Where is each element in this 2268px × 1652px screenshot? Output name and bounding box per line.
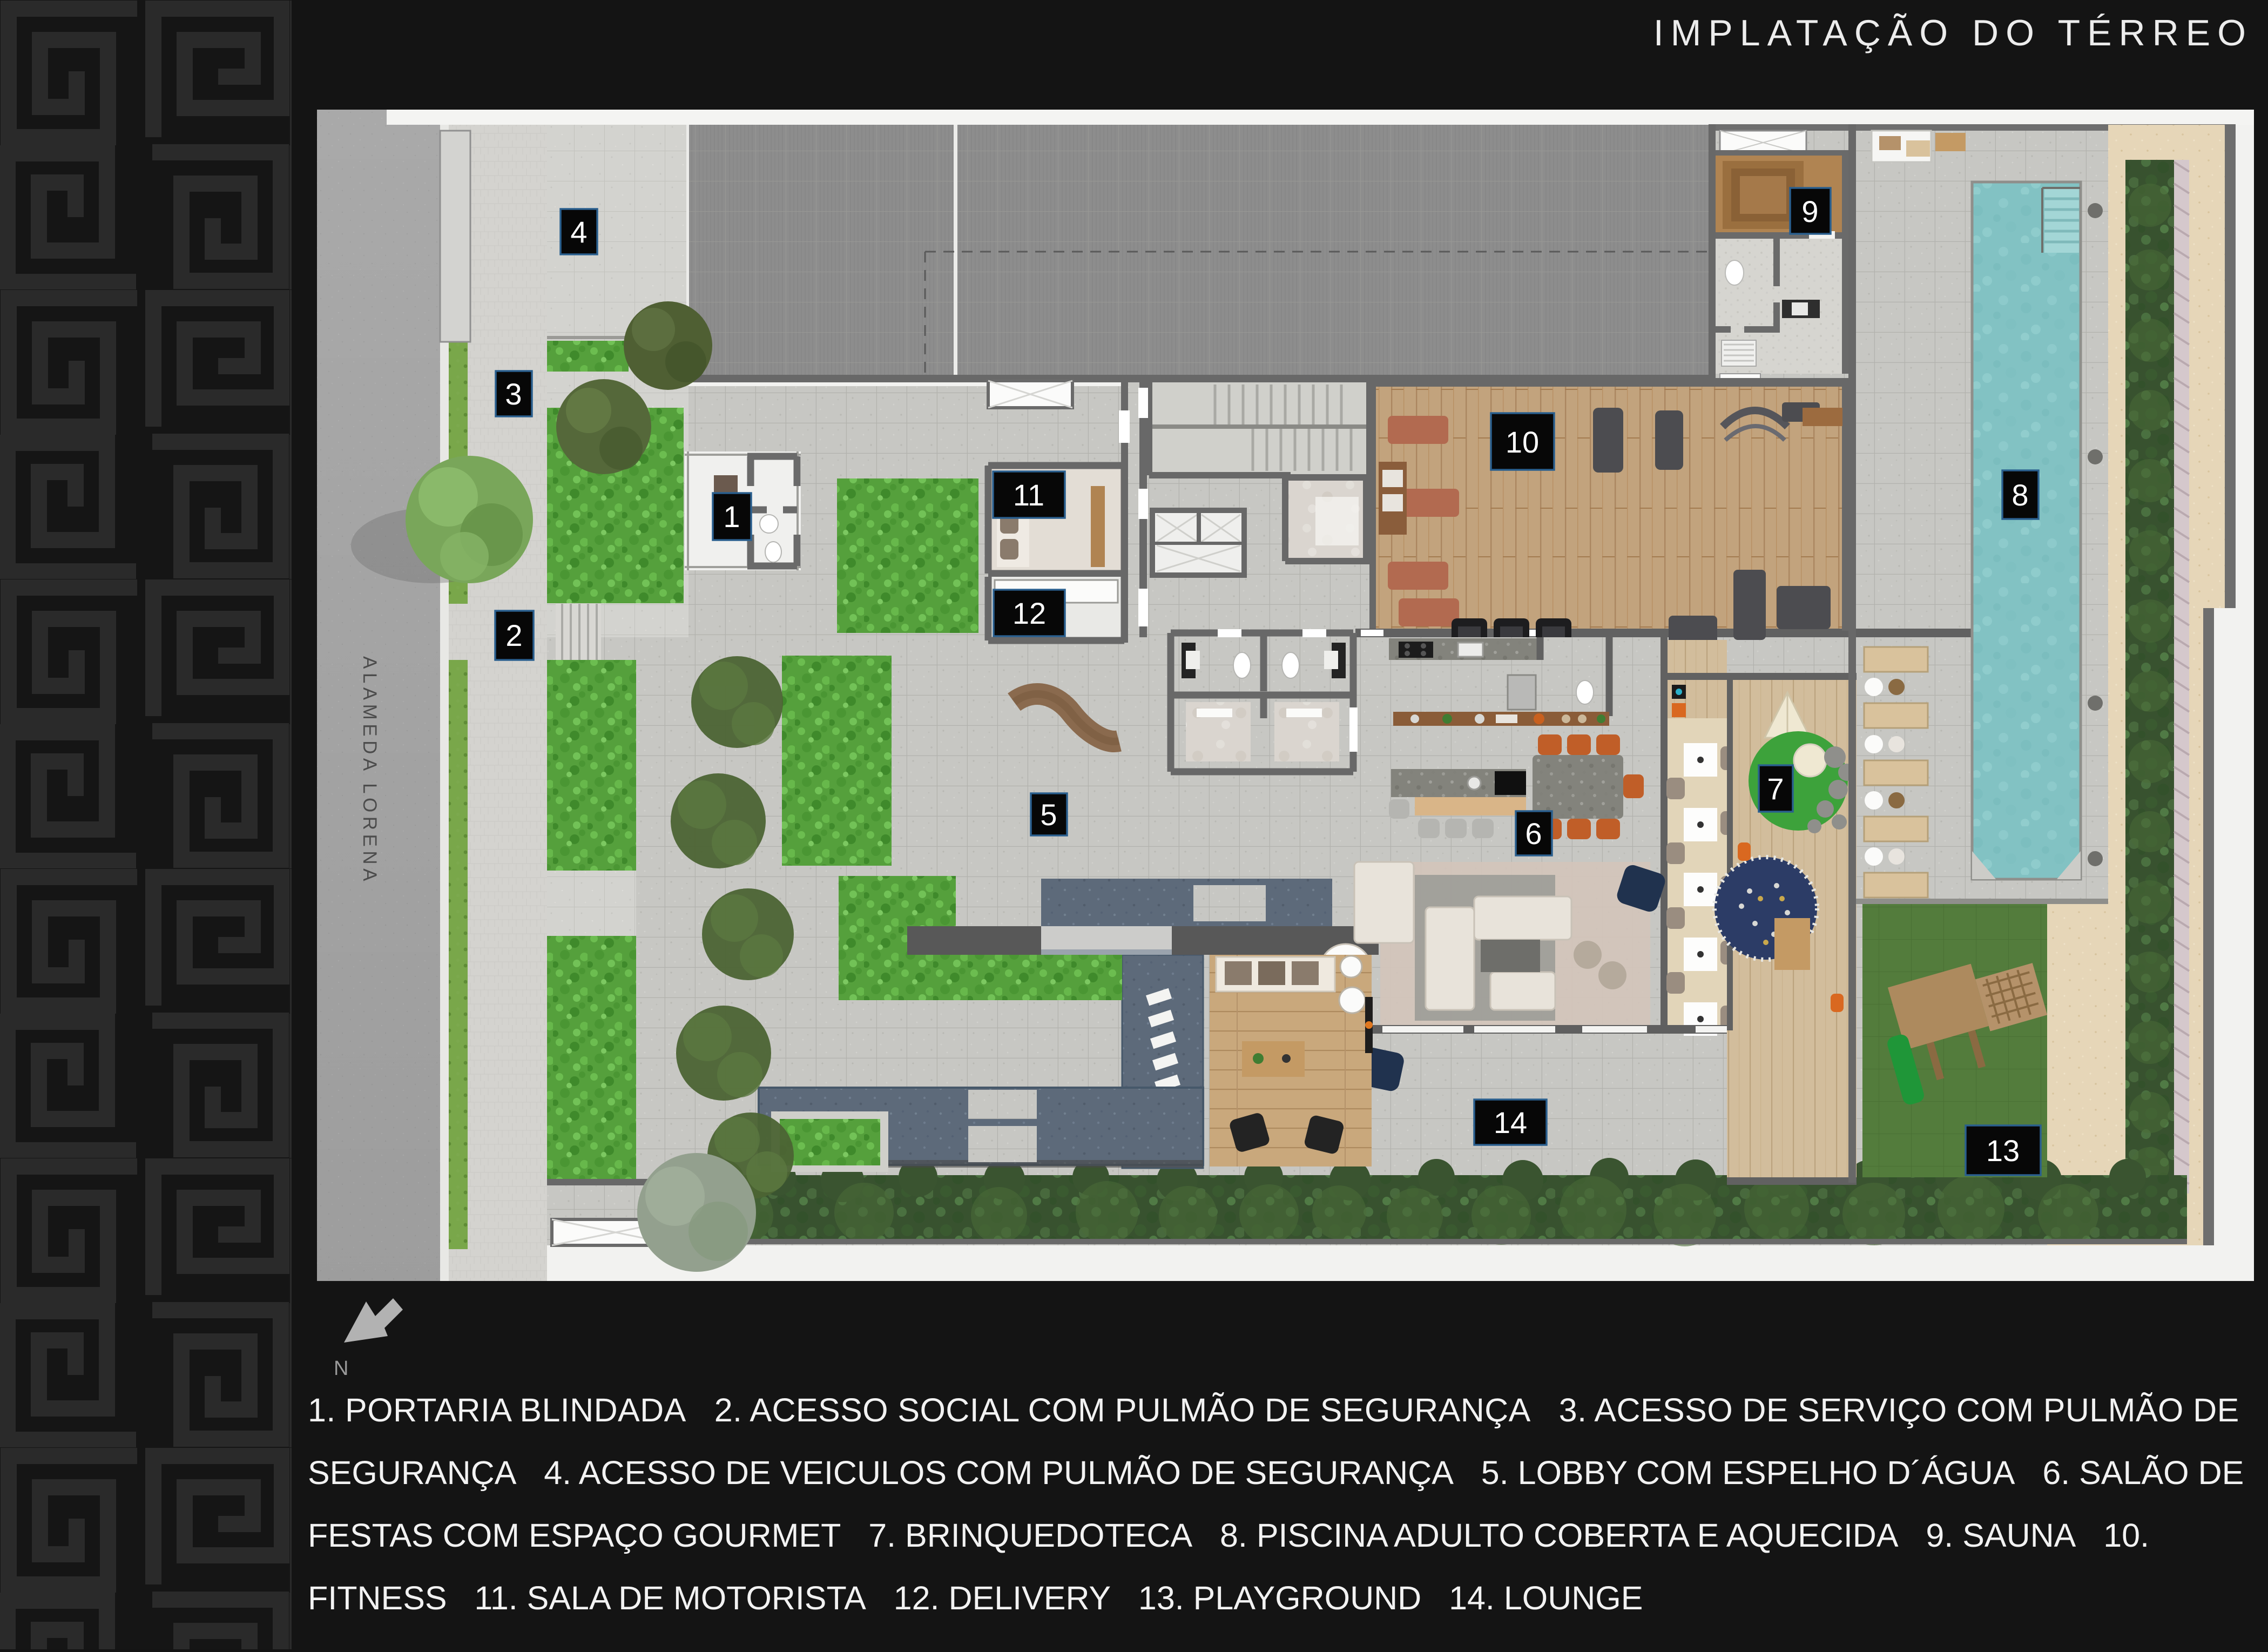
svg-text:1. PORTARIA BLINDADA 2. ACES: 1. PORTARIA BLINDADA 2. ACESSO SOCIAL CO… — [308, 1392, 2239, 1428]
svg-text:1: 1 — [723, 500, 740, 534]
svg-text:14: 14 — [1494, 1105, 1527, 1139]
svg-text:SEGURANÇA 4. ACESSO DE VEICU: SEGURANÇA 4. ACESSO DE VEICULOS COM PULM… — [308, 1454, 2244, 1491]
svg-text:2: 2 — [505, 618, 522, 652]
svg-text:10: 10 — [1506, 425, 1539, 459]
svg-text:IMPLATAÇÃO DO TÉRREO: IMPLATAÇÃO DO TÉRREO — [1653, 12, 2253, 53]
svg-text:5: 5 — [1040, 798, 1057, 832]
svg-text:12: 12 — [1013, 596, 1046, 630]
svg-text:4: 4 — [570, 215, 587, 249]
svg-text:FITNESS 11. SALA DE MOTORIST: FITNESS 11. SALA DE MOTORISTA 12. DELIVE… — [308, 1580, 1643, 1616]
svg-text:8: 8 — [2012, 478, 2028, 512]
svg-text:7: 7 — [1767, 772, 1784, 806]
svg-text:N: N — [334, 1357, 348, 1380]
svg-text:3: 3 — [505, 377, 522, 411]
svg-text:FESTAS COM ESPAÇO GOURMET 7.: FESTAS COM ESPAÇO GOURMET 7. BRINQUEDOTE… — [308, 1517, 2149, 1554]
svg-text:13: 13 — [1986, 1134, 2020, 1168]
svg-text:11: 11 — [1013, 478, 1044, 512]
svg-text:6: 6 — [1525, 817, 1542, 851]
svg-text:9: 9 — [1801, 194, 1818, 228]
